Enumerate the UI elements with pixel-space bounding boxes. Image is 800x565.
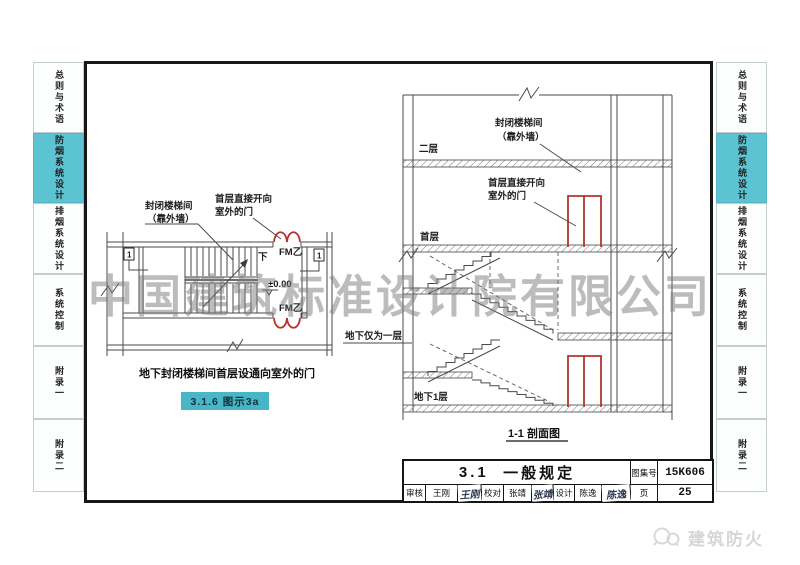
review-signature: 王刚 xyxy=(457,484,482,502)
atlas-number-label: 图集号 xyxy=(631,461,658,485)
title-block-title: 3.1 一般规定 xyxy=(404,461,631,485)
plan-view: 1 1 ±0.00 FM乙 FM乙 下 封闭楼梯间 （靠外墙） 首层直接开向 室… xyxy=(101,193,332,380)
section-door-label-2: 室外的门 xyxy=(488,190,526,202)
footer-logo-text: 建筑防火 xyxy=(688,525,764,550)
section-basement-label: 地下1层 xyxy=(414,391,448,403)
atlas-number-value: 15K606 xyxy=(658,461,712,485)
section-stairwell-label-1: 封闭楼梯间 xyxy=(495,117,543,129)
section-number: 3.1 xyxy=(459,464,489,481)
section-marker-1-left: 1 xyxy=(127,251,132,260)
plan-door-tag-top: FM乙 xyxy=(279,247,303,258)
plan-elevation-label: ±0.00 xyxy=(268,279,292,290)
page-number: 25 xyxy=(658,485,712,501)
review-name: 王刚 xyxy=(426,485,458,501)
plan-stairwell-label-1: 封闭楼梯间 xyxy=(145,200,193,212)
check-name: 张靖 xyxy=(504,485,532,501)
plan-down-label: 下 xyxy=(258,252,268,263)
review-label: 审核 xyxy=(404,485,426,501)
design-signature: 陈逸 xyxy=(601,484,631,502)
section-basement-note: 地下仅为一层 xyxy=(345,330,403,342)
section-stairwell-label-2: （靠外墙） xyxy=(497,131,545,143)
atlas-page: 总则与术语 防烟系统设计 排烟系统设计 系统控制 附录一 附录二 总则与术语 防… xyxy=(0,0,800,565)
plan-stairwell-label-2: （靠外墙） xyxy=(147,213,195,225)
check-label: 校对 xyxy=(482,485,504,501)
section-floor2-label: 二层 xyxy=(419,144,439,155)
check-signature: 张靖 xyxy=(531,484,554,501)
design-name: 陈逸 xyxy=(575,485,602,501)
section-title: 一般规定 xyxy=(503,462,575,483)
plan-door-tag-bottom: FM乙 xyxy=(279,303,303,314)
section-marker-1-right: 1 xyxy=(317,252,322,261)
section-floor1-label: 首层 xyxy=(420,231,440,243)
plan-caption: 地下封闭楼梯间首层设通向室外的门 xyxy=(139,366,315,380)
design-label: 设计 xyxy=(554,485,575,501)
footer-logo: 建筑防火 xyxy=(652,525,764,550)
page-label: 页 xyxy=(631,485,658,501)
section-door-label-1: 首层直接开向 xyxy=(488,177,545,189)
figure-badge: 3.1.6 图示3a xyxy=(181,392,269,410)
plan-door-label-1: 首层直接开向 xyxy=(215,193,272,205)
section-view: 二层 首层 地下1层 地下仅为一层 封闭楼梯间 （靠外墙） 首层直接开向 室外的… xyxy=(343,87,677,441)
plan-door-label-2: 室外的门 xyxy=(215,206,253,218)
section-caption: 1-1 剖面图 xyxy=(508,426,560,440)
title-block: 3.1 一般规定 图集号 15K606 审核 王刚 王刚 校对 张靖 张靖 设计… xyxy=(402,459,714,503)
chat-bubbles-icon xyxy=(652,527,682,549)
